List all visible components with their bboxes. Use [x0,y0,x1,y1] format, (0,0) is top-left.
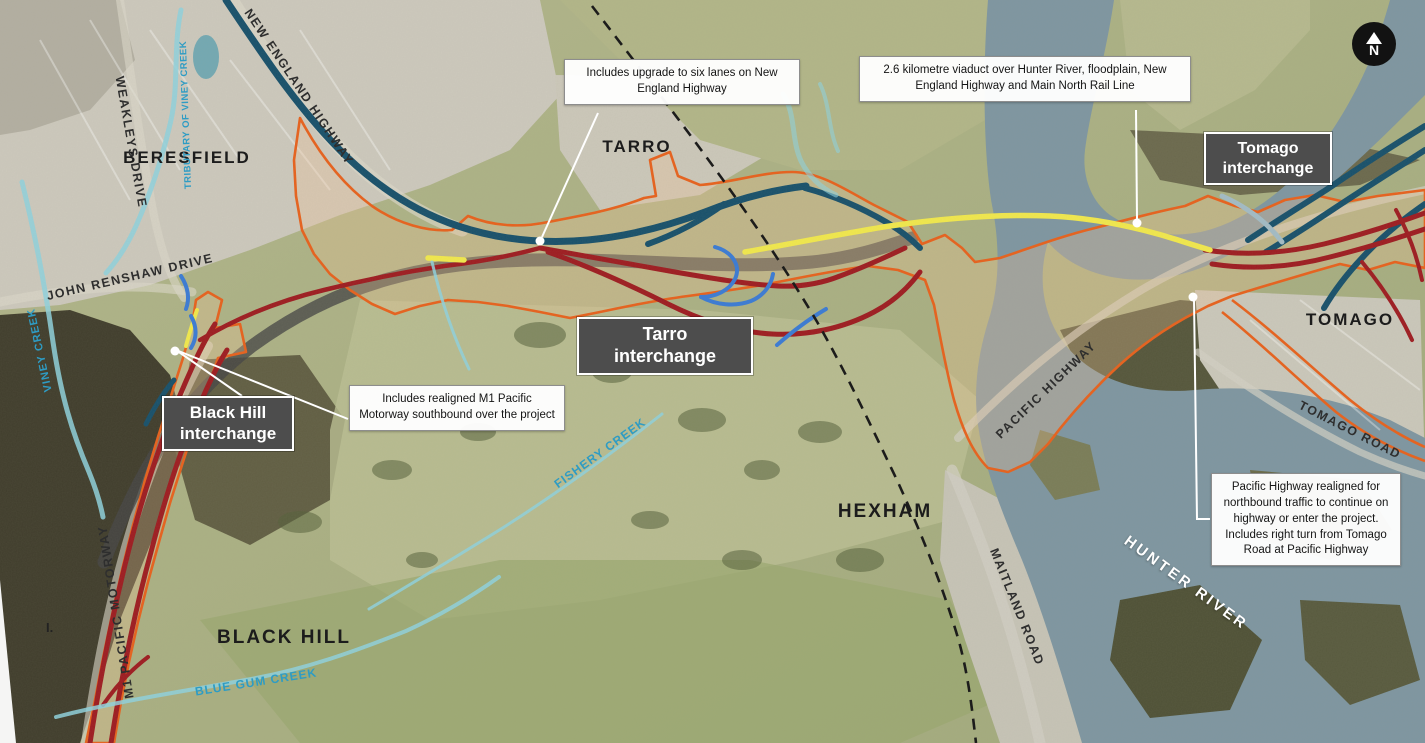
badge-tarro-interchange: Tarro interchange [577,317,753,375]
badge-black-hill-interchange: Black Hill interchange [162,396,294,451]
callout-six-lanes-upgrade: Includes upgrade to six lanes on New Eng… [564,59,800,105]
badge-word: interchange [1223,160,1314,177]
badge-word: interchange [614,346,716,366]
callout-viaduct: 2.6 kilometre viaduct over Hunter River,… [859,56,1191,102]
callout-realigned-m1: Includes realigned M1 Pacific Motorway s… [349,385,565,431]
badge-name: Black Hill [190,403,267,422]
north-arrow: N [1352,22,1396,66]
badge-tomago-interchange: Tomago interchange [1204,132,1332,185]
callout-pacific-highway-realigned: Pacific Highway realigned for northbound… [1211,473,1401,566]
project-map: BERESFIELD TARRO HEXHAM BLACK HILL TOMAG… [0,0,1425,743]
badge-word: interchange [180,424,276,443]
badge-name: Tarro [643,324,688,344]
north-letter: N [1369,43,1379,57]
badge-name: Tomago [1237,140,1298,157]
edge-cropped-text: I. [46,620,53,635]
